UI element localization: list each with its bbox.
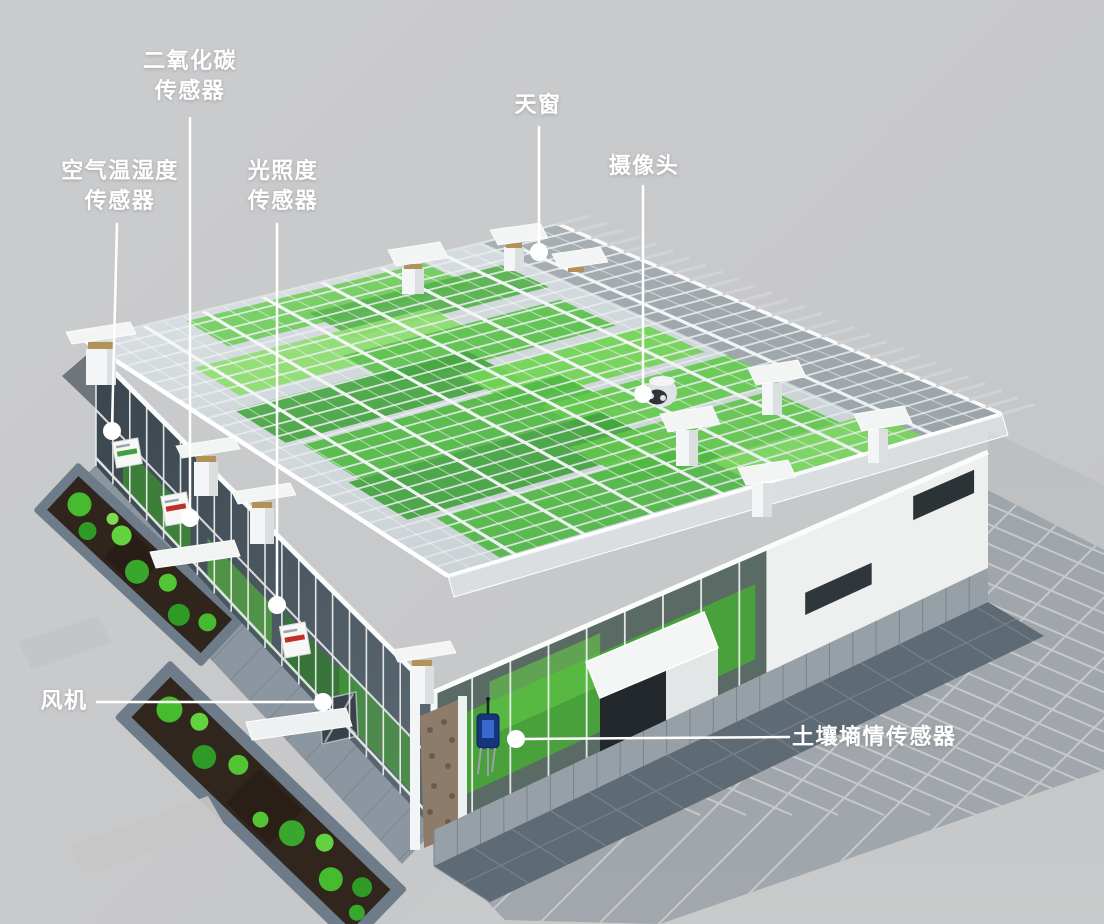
co2-callout-dot: [181, 509, 199, 527]
label-light-sensor: 光照度 传感器: [248, 156, 319, 216]
camera-callout-dot: [634, 385, 652, 403]
label-light-line2: 传感器: [248, 186, 319, 216]
label-air-line2: 传感器: [61, 186, 179, 216]
air-temp-humidity-sensor-box: [112, 438, 142, 468]
label-soil-moisture-sensor: 土壤墒情传感器: [792, 722, 957, 752]
label-co2-line1: 二氧化碳: [143, 46, 237, 76]
light-callout-dot: [268, 596, 286, 614]
label-skylight: 天窗: [514, 90, 561, 120]
walkway-strip-lower: [70, 796, 224, 876]
label-co2-sensor: 二氧化碳 传感器: [143, 46, 237, 106]
air-callout-dot: [103, 422, 121, 440]
light-sensor-box: [279, 622, 310, 658]
label-air-line1: 空气温湿度: [61, 156, 179, 186]
label-fan: 风机: [40, 686, 87, 716]
fan-callout-dot: [314, 693, 332, 711]
walkway-strip-upper: [18, 616, 112, 670]
greenhouse-diagram: 二氧化碳 传感器 空气温湿度 传感器 光照度 传感器 天窗 摄像头 风机 土壤墒…: [0, 0, 1104, 924]
label-camera: 摄像头: [609, 151, 680, 181]
label-air-temp-humidity-sensor: 空气温湿度 传感器: [61, 156, 179, 216]
label-co2-line2: 传感器: [143, 76, 237, 106]
soil-callout-dot: [507, 730, 525, 748]
label-light-line1: 光照度: [248, 156, 319, 186]
greenhouse-illustration: [0, 0, 1104, 924]
skylight-callout-dot: [530, 243, 548, 261]
